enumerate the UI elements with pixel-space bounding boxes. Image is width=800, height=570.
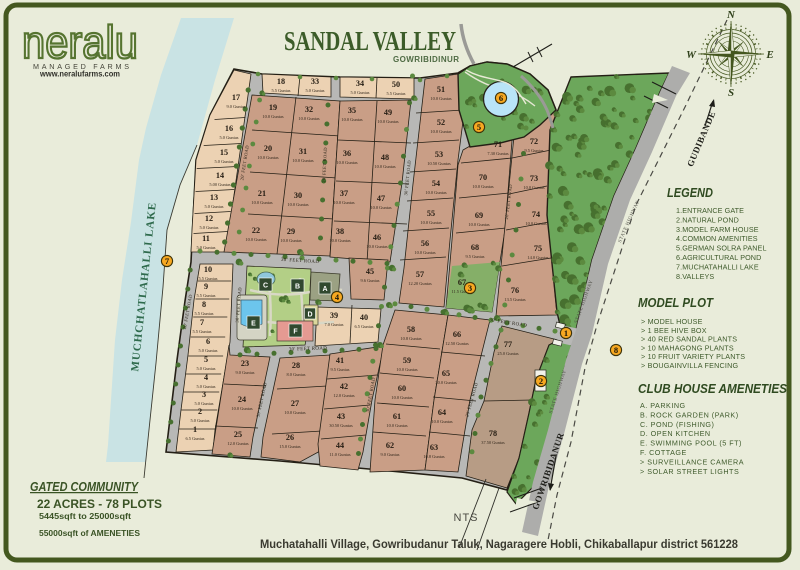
svg-text:3: 3 xyxy=(202,390,206,399)
svg-text:5.0 Guntas: 5.0 Guntas xyxy=(196,366,215,371)
svg-text:10.0 Guntas: 10.0 Guntas xyxy=(430,96,452,101)
svg-text:10.0 Guntas: 10.0 Guntas xyxy=(292,158,314,163)
svg-text:6: 6 xyxy=(206,337,210,346)
svg-text:5.5 Guntas: 5.5 Guntas xyxy=(196,293,215,298)
svg-text:8: 8 xyxy=(202,300,206,309)
svg-text:F. COTTAGE: F. COTTAGE xyxy=(640,448,687,457)
svg-text:32: 32 xyxy=(305,105,313,114)
svg-text:58: 58 xyxy=(407,325,415,334)
svg-text:GOWRIBIDINUR: GOWRIBIDINUR xyxy=(393,55,459,64)
svg-text:MODEL PLOT: MODEL PLOT xyxy=(638,296,714,310)
svg-text:74: 74 xyxy=(532,210,540,219)
svg-text:25: 25 xyxy=(234,430,242,439)
svg-text:37.50 Guntas: 37.50 Guntas xyxy=(481,440,505,445)
svg-text:10: 10 xyxy=(204,265,212,274)
svg-text:10.50 Guntas: 10.50 Guntas xyxy=(427,161,451,166)
svg-text:9.5 Guntas: 9.5 Guntas xyxy=(524,148,543,153)
svg-text:10.0 Guntas: 10.0 Guntas xyxy=(284,410,306,415)
svg-text:30: 30 xyxy=(294,191,302,200)
svg-text:> 10 MAHAGONG PLANTS: > 10 MAHAGONG PLANTS xyxy=(641,343,734,352)
svg-text:10.0 Guntas: 10.0 Guntas xyxy=(280,238,302,243)
svg-text:44: 44 xyxy=(336,441,344,450)
svg-text:7.MUCHATAHALLI LAKE: 7.MUCHATAHALLI LAKE xyxy=(676,262,759,271)
svg-text:43: 43 xyxy=(337,412,345,421)
svg-text:15: 15 xyxy=(220,148,228,157)
svg-text:68: 68 xyxy=(471,243,479,252)
svg-text:10.0 Guntas: 10.0 Guntas xyxy=(374,164,396,169)
svg-text:50: 50 xyxy=(392,80,400,89)
svg-text:9.6 Guntas: 9.6 Guntas xyxy=(360,278,379,283)
svg-text:10.0 Guntas: 10.0 Guntas xyxy=(298,116,320,121)
svg-text:CLUB HOUSE AMENETIES: CLUB HOUSE AMENETIES xyxy=(638,382,788,396)
svg-text:64: 64 xyxy=(438,408,446,417)
svg-text:5.GERMAN SOLRA PANEL: 5.GERMAN SOLRA PANEL xyxy=(676,244,767,253)
svg-text:42: 42 xyxy=(340,382,348,391)
svg-text:10.0 Guntas: 10.0 Guntas xyxy=(430,129,452,134)
svg-text:> 1 BEE HIVE BOX: > 1 BEE HIVE BOX xyxy=(641,326,707,335)
svg-text:22: 22 xyxy=(252,226,260,235)
svg-text:35: 35 xyxy=(348,106,356,115)
svg-text:29: 29 xyxy=(287,227,295,236)
svg-text:20: 20 xyxy=(264,144,272,153)
svg-text:10.0 Guntas: 10.0 Guntas xyxy=(396,367,418,372)
svg-text:> MODEL HOUSE: > MODEL HOUSE xyxy=(641,317,703,326)
svg-text:24: 24 xyxy=(238,395,246,404)
svg-text:9: 9 xyxy=(204,282,208,291)
svg-text:30.50 Guntas: 30.50 Guntas xyxy=(329,423,353,428)
svg-text:17: 17 xyxy=(232,93,240,102)
svg-text:10.0 Guntas: 10.0 Guntas xyxy=(420,220,442,225)
svg-text:48: 48 xyxy=(381,153,389,162)
svg-text:63: 63 xyxy=(430,443,438,452)
svg-text:49: 49 xyxy=(384,108,392,117)
svg-text:56: 56 xyxy=(421,239,429,248)
svg-text:5.5 Guntas: 5.5 Guntas xyxy=(192,329,211,334)
svg-text:12: 12 xyxy=(205,214,213,223)
svg-text:W: W xyxy=(686,49,697,61)
svg-text:6.5 Guntas: 6.5 Guntas xyxy=(354,324,373,329)
svg-text:10.0 Guntas: 10.0 Guntas xyxy=(523,185,545,190)
svg-text:5.0 Guntas: 5.0 Guntas xyxy=(350,90,369,95)
svg-text:5.0 Guntas: 5.0 Guntas xyxy=(199,225,218,230)
svg-text:A. PARKING: A. PARKING xyxy=(640,401,686,410)
svg-text:10.0 Guntas: 10.0 Guntas xyxy=(329,238,351,243)
svg-text:10.0 Guntas: 10.0 Guntas xyxy=(525,221,547,226)
svg-text:5.0 Guntas: 5.0 Guntas xyxy=(194,401,213,406)
svg-text:4.COMMON AMENITIES: 4.COMMON AMENITIES xyxy=(676,234,758,243)
svg-text:8: 8 xyxy=(614,345,618,355)
svg-text:53: 53 xyxy=(435,150,443,159)
svg-text:2: 2 xyxy=(539,376,543,386)
svg-text:5.0 Guntas: 5.0 Guntas xyxy=(196,245,215,250)
svg-text:73: 73 xyxy=(530,174,538,183)
svg-text:5445sqft to 25000sqft: 5445sqft to 25000sqft xyxy=(39,511,131,521)
svg-text:6: 6 xyxy=(499,93,503,103)
svg-text:10.0 Guntas: 10.0 Guntas xyxy=(425,190,447,195)
svg-text:30.0 Guntas: 30.0 Guntas xyxy=(435,380,457,385)
svg-text:13.5 Guntas: 13.5 Guntas xyxy=(504,297,526,302)
svg-text:1: 1 xyxy=(193,425,197,434)
svg-text:10.0 Guntas: 10.0 Guntas xyxy=(287,202,309,207)
svg-text:B. ROCK GARDEN (PARK): B. ROCK GARDEN (PARK) xyxy=(640,410,739,419)
svg-text:A: A xyxy=(322,286,327,293)
svg-text:4: 4 xyxy=(204,373,208,382)
svg-text:72: 72 xyxy=(530,137,538,146)
svg-text:10.0 Guntas: 10.0 Guntas xyxy=(245,237,267,242)
svg-text:10.0 Guntas: 10.0 Guntas xyxy=(231,406,253,411)
svg-text:1.ENTRANCE GATE: 1.ENTRANCE GATE xyxy=(676,206,744,215)
svg-text:77: 77 xyxy=(504,340,512,349)
svg-text:60: 60 xyxy=(398,384,406,393)
svg-text:27: 27 xyxy=(291,399,299,408)
svg-text:12.0 Guntas: 12.0 Guntas xyxy=(333,393,355,398)
svg-text:9.0 Guntas: 9.0 Guntas xyxy=(380,452,399,457)
svg-text:3.MODEL FARM HOUSE: 3.MODEL FARM HOUSE xyxy=(676,225,759,234)
svg-text:8.0 Guntas: 8.0 Guntas xyxy=(286,372,305,377)
svg-text:71: 71 xyxy=(494,140,502,149)
svg-text:9.0 Guntas: 9.0 Guntas xyxy=(235,370,254,375)
svg-text:33: 33 xyxy=(311,77,319,86)
svg-text:70: 70 xyxy=(479,173,487,182)
svg-text:5.00 Guntas: 5.00 Guntas xyxy=(209,182,231,187)
svg-text:neralu: neralu xyxy=(22,16,138,68)
svg-text:61: 61 xyxy=(393,412,401,421)
svg-text:26: 26 xyxy=(286,433,294,442)
svg-text:76: 76 xyxy=(511,286,519,295)
svg-text:51: 51 xyxy=(437,85,445,94)
svg-text:5.5 Guntas: 5.5 Guntas xyxy=(198,276,217,281)
svg-text:10.0 Guntas: 10.0 Guntas xyxy=(468,222,490,227)
svg-text:14: 14 xyxy=(216,171,224,180)
svg-text:10.0 Guntas: 10.0 Guntas xyxy=(377,119,399,124)
svg-text:31: 31 xyxy=(299,147,307,156)
svg-text:19: 19 xyxy=(269,103,277,112)
svg-text:GATED COMMUNITY: GATED COMMUNITY xyxy=(30,480,139,494)
svg-text:38: 38 xyxy=(336,227,344,236)
svg-text:5.0 Guntas: 5.0 Guntas xyxy=(204,204,223,209)
svg-text:62: 62 xyxy=(386,441,394,450)
svg-text:28: 28 xyxy=(292,361,300,370)
svg-text:12.0 Guntas: 12.0 Guntas xyxy=(227,441,249,446)
svg-text:5: 5 xyxy=(477,122,481,132)
svg-text:10.0 Guntas: 10.0 Guntas xyxy=(386,423,408,428)
svg-text:SANDAL VALLEY: SANDAL VALLEY xyxy=(284,26,456,56)
svg-text:5.5 Guntas: 5.5 Guntas xyxy=(386,91,405,96)
svg-text:78: 78 xyxy=(489,429,497,438)
svg-text:10.0 Guntas: 10.0 Guntas xyxy=(257,155,279,160)
svg-text:25.0 Guntas: 25.0 Guntas xyxy=(497,351,519,356)
svg-text:10.0 Guntas: 10.0 Guntas xyxy=(391,395,413,400)
svg-text:10.0 Guntas: 10.0 Guntas xyxy=(431,419,453,424)
svg-text:7.30 Guntas: 7.30 Guntas xyxy=(487,151,509,156)
svg-text:23: 23 xyxy=(241,359,249,368)
svg-text:10.0 Guntas: 10.0 Guntas xyxy=(341,117,363,122)
svg-text:2: 2 xyxy=(198,407,202,416)
svg-text:45: 45 xyxy=(366,267,374,276)
svg-text:41: 41 xyxy=(336,356,344,365)
svg-text:10.0 Guntas: 10.0 Guntas xyxy=(333,200,355,205)
svg-text:39: 39 xyxy=(330,311,338,320)
svg-text:10.8 Guntas: 10.8 Guntas xyxy=(423,454,445,459)
svg-text:40: 40 xyxy=(360,313,368,322)
svg-text:LEGEND: LEGEND xyxy=(667,186,713,200)
svg-text:52: 52 xyxy=(437,118,445,127)
svg-text:10.0 Guntas: 10.0 Guntas xyxy=(414,250,436,255)
svg-text:36: 36 xyxy=(343,149,351,158)
svg-text:66: 66 xyxy=(453,330,461,339)
svg-text:C. POND (FISHING): C. POND (FISHING) xyxy=(640,420,714,429)
svg-text:5.0 Guntas: 5.0 Guntas xyxy=(198,348,217,353)
svg-text:5.5 Guntas: 5.5 Guntas xyxy=(194,311,213,316)
svg-text:59: 59 xyxy=(403,356,411,365)
svg-text:5.0 Guntas: 5.0 Guntas xyxy=(219,135,238,140)
svg-text:11: 11 xyxy=(202,234,210,243)
svg-text:E: E xyxy=(251,321,256,328)
svg-text:1: 1 xyxy=(564,328,568,338)
svg-text:6.AGRICULTURAL POND: 6.AGRICULTURAL POND xyxy=(676,253,761,262)
svg-text:46: 46 xyxy=(373,233,381,242)
svg-text:> 10 FRUIT VARIETY PLANTS: > 10 FRUIT VARIETY PLANTS xyxy=(641,352,745,361)
svg-text:57: 57 xyxy=(416,270,424,279)
svg-text:55: 55 xyxy=(427,209,435,218)
svg-text:9.5 Guntas: 9.5 Guntas xyxy=(465,254,484,259)
svg-text:55000sqft of AMENETIES: 55000sqft of AMENETIES xyxy=(39,528,140,538)
svg-text:11.0 Guntas: 11.0 Guntas xyxy=(329,452,350,457)
svg-text:65: 65 xyxy=(442,369,450,378)
svg-text:C: C xyxy=(263,283,268,290)
svg-text:B: B xyxy=(295,284,300,291)
svg-text:www.neralufarms.com: www.neralufarms.com xyxy=(39,69,120,79)
svg-text:13: 13 xyxy=(210,193,218,202)
svg-text:21: 21 xyxy=(258,189,266,198)
svg-text:7: 7 xyxy=(200,318,204,327)
svg-text:12.20 Guntas: 12.20 Guntas xyxy=(408,281,432,286)
svg-text:9.0 Guntas: 9.0 Guntas xyxy=(226,104,245,109)
svg-text:Muchatahalli Village, Gowribud: Muchatahalli Village, Gowribudanur Taluk… xyxy=(260,537,738,551)
svg-text:S: S xyxy=(728,87,734,99)
svg-text:5.0 Guntas: 5.0 Guntas xyxy=(214,159,233,164)
svg-text:2.NATURAL POND: 2.NATURAL POND xyxy=(676,215,739,224)
svg-text:34: 34 xyxy=(356,79,364,88)
svg-text:18: 18 xyxy=(277,77,285,86)
svg-text:69: 69 xyxy=(475,211,483,220)
svg-text:15.0 Guntas: 15.0 Guntas xyxy=(279,444,301,449)
svg-text:> BOUGAINVILLA FENCING: > BOUGAINVILLA FENCING xyxy=(641,361,738,370)
svg-text:5.0 Guntas: 5.0 Guntas xyxy=(305,88,324,93)
svg-text:16: 16 xyxy=(225,124,233,133)
svg-text:54: 54 xyxy=(432,179,440,188)
svg-text:10.8 Guntas: 10.8 Guntas xyxy=(400,336,422,341)
svg-text:> SURVEILLANCE CAMERA: > SURVEILLANCE CAMERA xyxy=(640,457,744,466)
svg-text:10.0 Guntas: 10.0 Guntas xyxy=(366,244,388,249)
svg-text:5.5 Guntas: 5.5 Guntas xyxy=(271,88,290,93)
svg-text:14.0 Guntas: 14.0 Guntas xyxy=(527,255,549,260)
svg-text:5: 5 xyxy=(204,355,208,364)
svg-text:10.0 Guntas: 10.0 Guntas xyxy=(472,184,494,189)
svg-text:5.0 Guntas: 5.0 Guntas xyxy=(196,384,215,389)
svg-text:10.0 Guntas: 10.0 Guntas xyxy=(370,205,392,210)
svg-text:E. SWIMMING POOL (5 FT): E. SWIMMING POOL (5 FT) xyxy=(640,439,742,448)
svg-text:47: 47 xyxy=(377,194,385,203)
svg-text:8.VALLEYS: 8.VALLEYS xyxy=(676,272,714,281)
svg-text:> SOLAR STREET LIGHTS: > SOLAR STREET LIGHTS xyxy=(640,467,739,476)
svg-text:75: 75 xyxy=(534,244,542,253)
svg-text:12.50 Guntas: 12.50 Guntas xyxy=(445,341,469,346)
svg-text:E: E xyxy=(765,49,773,61)
svg-text:F: F xyxy=(293,329,298,336)
svg-text:5.0 Guntas: 5.0 Guntas xyxy=(190,418,209,423)
svg-text:NTS: NTS xyxy=(454,512,479,524)
svg-text:10.0 Guntas: 10.0 Guntas xyxy=(262,114,284,119)
svg-text:22 ACRES - 78 PLOTS: 22 ACRES - 78 PLOTS xyxy=(37,497,162,511)
svg-text:6.5 Guntas: 6.5 Guntas xyxy=(185,436,204,441)
svg-text:D. OPEN KITCHEN: D. OPEN KITCHEN xyxy=(640,429,711,438)
svg-text:37: 37 xyxy=(340,189,348,198)
svg-text:9.5 Guntas: 9.5 Guntas xyxy=(330,367,349,372)
svg-text:N: N xyxy=(726,9,736,21)
svg-text:D: D xyxy=(307,312,312,319)
svg-text:10.0 Guntas: 10.0 Guntas xyxy=(336,160,358,165)
svg-text:7.0 Guntas: 7.0 Guntas xyxy=(324,322,343,327)
svg-text:3: 3 xyxy=(468,283,472,293)
svg-text:10.0 Guntas: 10.0 Guntas xyxy=(251,200,273,205)
svg-text:> 40 RED SANDAL PLANTS: > 40 RED SANDAL PLANTS xyxy=(641,335,737,344)
